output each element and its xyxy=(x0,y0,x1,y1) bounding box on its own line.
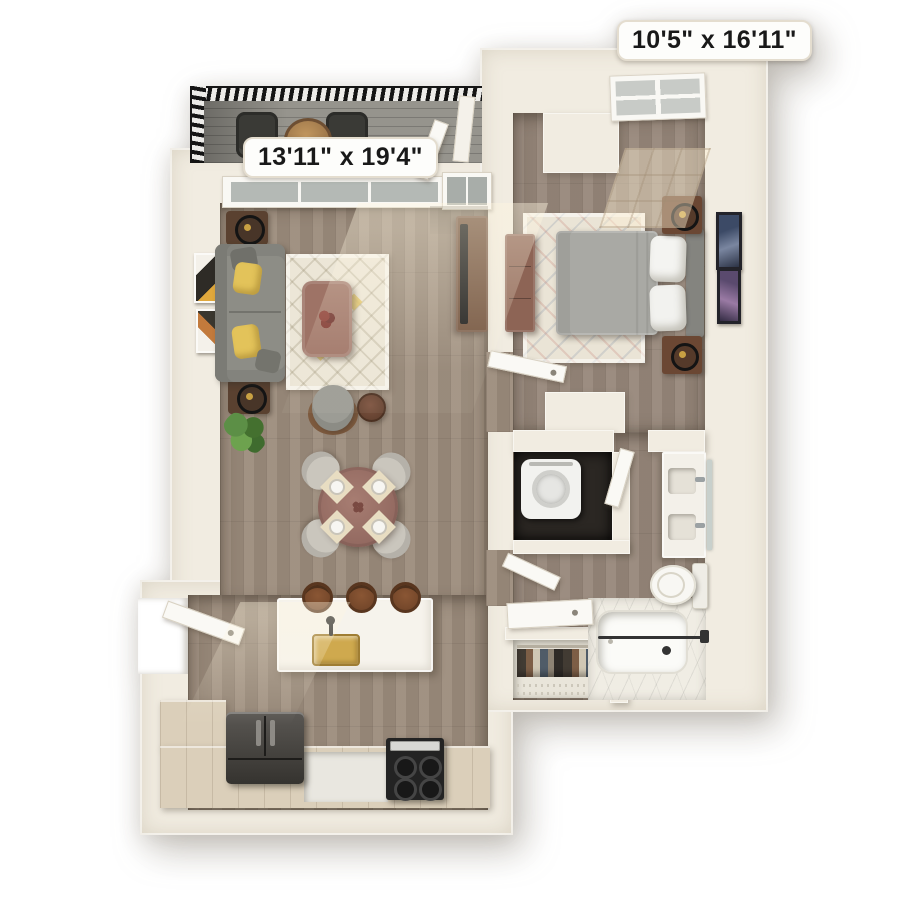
lamp-finial-icon xyxy=(244,224,251,231)
door-handle-icon xyxy=(572,610,578,616)
toilet-seat-ring xyxy=(657,572,685,598)
lamp-finial-icon xyxy=(679,351,686,358)
toilet-bowl xyxy=(650,565,696,605)
sofa-cushion-split xyxy=(229,311,281,313)
table-decor-flowers xyxy=(318,309,336,329)
faucet-icon xyxy=(695,523,705,528)
stove-control-panel xyxy=(390,741,440,751)
bed xyxy=(556,228,706,338)
bedroom-closet-bulkhead xyxy=(543,113,619,173)
bar-stool xyxy=(302,582,333,613)
island-sink xyxy=(312,634,360,666)
bathroom-vanity xyxy=(662,452,706,558)
closet-sliding-door xyxy=(506,599,593,629)
dining-table xyxy=(318,467,398,547)
living-window xyxy=(222,176,444,208)
potted-plant xyxy=(222,410,268,456)
sofa-pillow-gray-2 xyxy=(254,348,282,375)
plate-icon xyxy=(368,476,391,499)
nightstand-lamp-icon xyxy=(671,343,699,371)
lamp-finial-icon xyxy=(246,393,253,400)
sofa-pillow-yellow-1 xyxy=(232,261,263,295)
dresser-drawer-line xyxy=(509,298,531,299)
faucet-icon xyxy=(326,616,335,625)
nightstand-bottom xyxy=(662,336,702,374)
vanity-sink xyxy=(668,468,696,494)
door-handle-icon xyxy=(550,369,557,376)
fridge-door-split xyxy=(264,716,266,756)
tub-drain-icon xyxy=(608,639,613,644)
lamp-finial-icon xyxy=(679,211,686,218)
table-lamp-icon xyxy=(235,215,265,245)
chair-side-table xyxy=(357,393,386,422)
bedroom-dimensions-text: 10'5" x 16'11" xyxy=(632,26,797,54)
kitchen-counter-lowered xyxy=(304,752,388,802)
accent-chair xyxy=(306,385,360,437)
shower-rod-icon xyxy=(598,636,706,639)
side-table-bottom xyxy=(228,379,270,414)
floor-plan-image: 13'11" x 19'4" 10'5" x 16'11" xyxy=(0,0,900,900)
vanity-sink xyxy=(668,514,696,540)
living-window-glass xyxy=(228,182,438,202)
bed-pillow xyxy=(649,235,687,282)
mattress-duvet xyxy=(556,231,658,335)
burner-icon xyxy=(419,778,442,801)
tv-icon xyxy=(460,224,468,324)
plate-icon xyxy=(326,476,349,499)
plate-icon xyxy=(326,516,349,539)
refrigerator xyxy=(226,712,304,784)
sofa xyxy=(215,244,285,382)
tub-faucet-icon xyxy=(662,646,671,655)
coffee-table-ottoman xyxy=(302,281,352,357)
burner-icon xyxy=(394,756,417,779)
bedroom-bath-wall-right xyxy=(648,430,705,452)
laundry-closet xyxy=(514,452,612,540)
living-room-dimensions-badge: 13'11" x 19'4" xyxy=(243,137,438,178)
stove-range xyxy=(386,738,444,800)
nightstand-top xyxy=(662,196,702,234)
fridge-freezer-line xyxy=(228,758,302,760)
plate-icon xyxy=(368,516,391,539)
tv-console xyxy=(456,216,488,332)
bathtub xyxy=(596,610,688,674)
bedroom-art-frame-1 xyxy=(716,212,742,270)
balcony-sliding-door xyxy=(442,172,492,210)
door-handle-icon xyxy=(227,629,235,637)
floor-plan: 13'11" x 19'4" 10'5" x 16'11" xyxy=(0,0,900,900)
table-centerpiece xyxy=(352,501,364,513)
headboard xyxy=(686,229,704,337)
bedroom-window xyxy=(609,72,707,121)
faucet-icon xyxy=(695,477,705,482)
dresser xyxy=(505,234,535,332)
laundry-wall-bottom xyxy=(513,540,630,554)
washer-dryer xyxy=(521,459,581,519)
dresser-drawer-line xyxy=(509,266,531,267)
living-room-dimensions-text: 13'11" x 19'4" xyxy=(258,143,423,171)
bedroom-art-frame-2 xyxy=(717,268,741,324)
burner-icon xyxy=(419,756,442,779)
burner-icon xyxy=(394,778,417,801)
kitchen-counter-left xyxy=(160,700,226,748)
bar-stool xyxy=(390,582,421,613)
nightstand-lamp-icon xyxy=(671,203,699,231)
fridge-handle-icon xyxy=(256,720,261,746)
fridge-handle-icon xyxy=(270,720,275,746)
bathtub-deck xyxy=(588,598,706,700)
vanity-mirror xyxy=(707,460,712,550)
bedroom-window-glass xyxy=(615,79,700,116)
bar-stool xyxy=(346,582,377,613)
accent-chair-seat xyxy=(312,385,354,431)
bedroom-bath-wall-left xyxy=(513,430,614,452)
sliding-door-glass xyxy=(447,177,487,205)
washer-door-icon xyxy=(532,470,570,508)
bed-pillow xyxy=(649,284,687,331)
washer-controls-icon xyxy=(529,462,573,466)
side-table-top xyxy=(226,211,268,245)
bedroom-dimensions-badge: 10'5" x 16'11" xyxy=(617,20,812,61)
shower-head-icon xyxy=(700,630,709,643)
toilet xyxy=(650,560,708,610)
